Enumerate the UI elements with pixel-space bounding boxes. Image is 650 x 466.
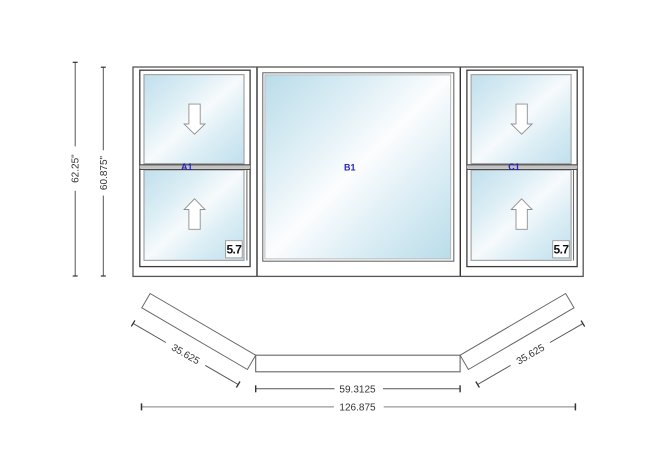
svg-text:126.875: 126.875 — [339, 402, 376, 413]
svg-text:5.7: 5.7 — [226, 242, 242, 256]
svg-text:35.625: 35.625 — [515, 342, 547, 367]
svg-text:C1: C1 — [508, 162, 520, 172]
svg-text:62.25": 62.25" — [71, 154, 82, 183]
svg-text:5.7: 5.7 — [554, 242, 570, 256]
svg-text:B1: B1 — [344, 163, 356, 173]
svg-text:A1: A1 — [181, 162, 193, 172]
svg-text:60.875": 60.875" — [99, 155, 110, 190]
svg-text:59.3125: 59.3125 — [339, 384, 376, 395]
svg-text:35.625: 35.625 — [169, 342, 201, 367]
